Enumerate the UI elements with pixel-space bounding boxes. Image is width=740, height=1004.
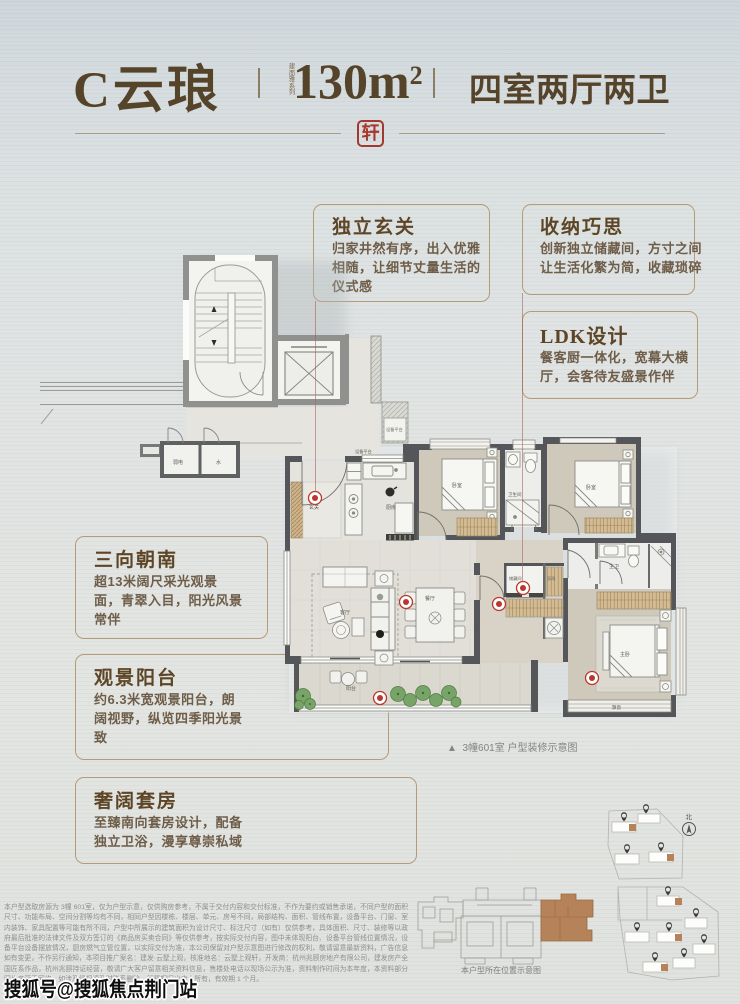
- svg-text:卧室: 卧室: [452, 482, 462, 489]
- svg-text:家政: 家政: [547, 575, 556, 582]
- svg-text:水: 水: [216, 459, 221, 466]
- svg-text:北: 北: [686, 813, 693, 821]
- svg-text:厨房: 厨房: [386, 504, 396, 511]
- svg-text:设备平台: 设备平台: [386, 426, 403, 433]
- svg-text:卫生间: 卫生间: [508, 491, 522, 498]
- svg-text:弱电: 弱电: [173, 459, 183, 466]
- svg-text:储藏间: 储藏间: [509, 575, 522, 582]
- svg-text:主卧: 主卧: [620, 651, 630, 658]
- svg-text:客厅: 客厅: [340, 609, 350, 616]
- svg-text:餐厅: 餐厅: [425, 595, 435, 602]
- svg-text:阳台: 阳台: [346, 685, 356, 692]
- svg-text:主卫: 主卫: [609, 563, 619, 570]
- svg-text:卧室: 卧室: [586, 484, 596, 491]
- svg-text:设备平台: 设备平台: [355, 448, 372, 455]
- svg-text:飘窗: 飘窗: [612, 704, 621, 711]
